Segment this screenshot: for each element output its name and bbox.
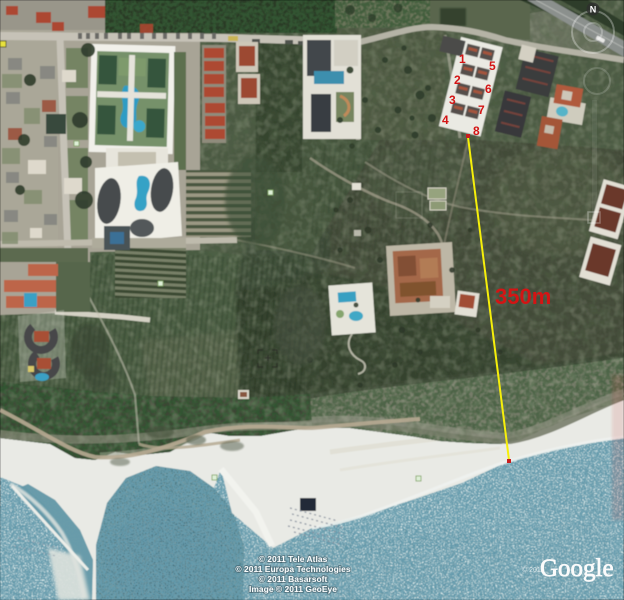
svg-text:© 2011 Europa Technologies: © 2011 Europa Technologies: [235, 564, 350, 574]
svg-text:2: 2: [454, 73, 461, 87]
svg-text:Google: Google: [540, 555, 614, 582]
svg-text:1: 1: [459, 52, 466, 66]
svg-text:7: 7: [478, 103, 485, 117]
svg-text:Image © 2011 GeoEye: Image © 2011 GeoEye: [249, 584, 337, 594]
svg-text:© 2011 Tele Atlas: © 2011 Tele Atlas: [259, 554, 328, 564]
svg-text:© 2011 Basarsoft: © 2011 Basarsoft: [259, 574, 328, 584]
svg-text:3: 3: [449, 93, 456, 107]
svg-text:350m: 350m: [495, 284, 551, 309]
svg-text:4: 4: [442, 113, 449, 127]
svg-text:6: 6: [485, 82, 492, 96]
svg-text:N: N: [590, 5, 597, 15]
svg-text:5: 5: [489, 59, 496, 73]
svg-text:8: 8: [473, 124, 480, 138]
